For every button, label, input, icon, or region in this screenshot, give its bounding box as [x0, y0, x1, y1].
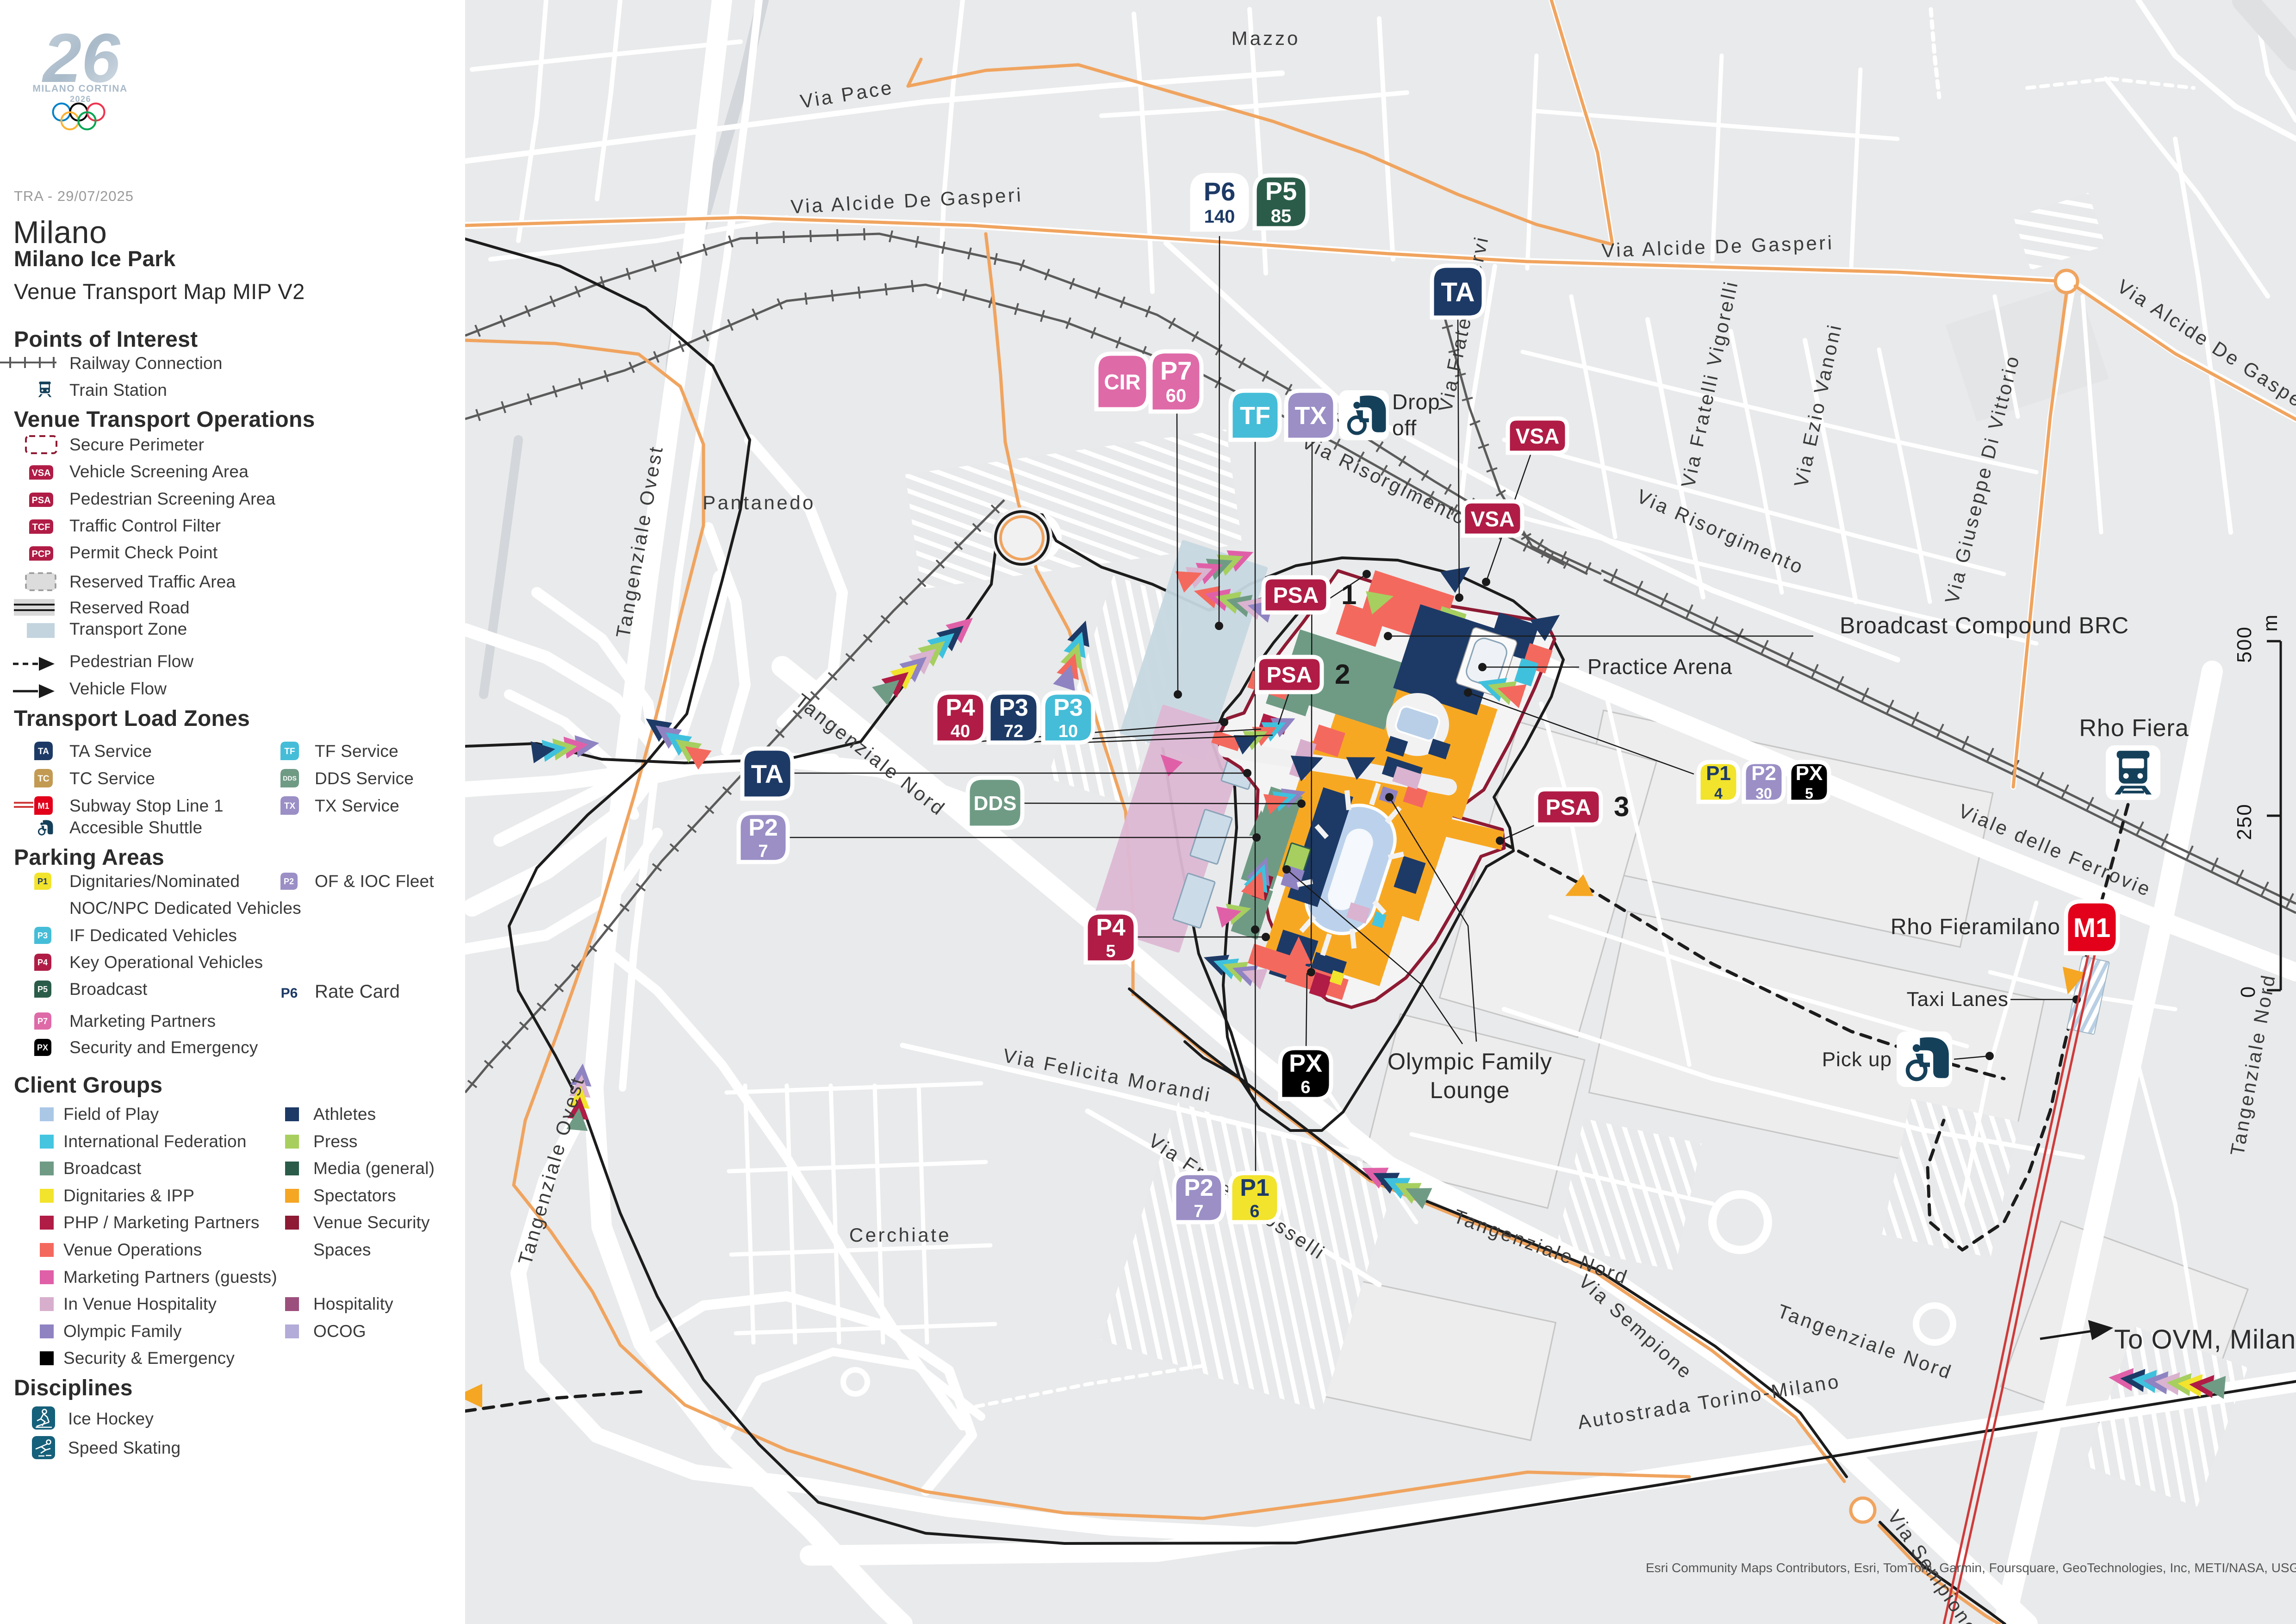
svg-text:OCOG: OCOG [313, 1322, 366, 1341]
svg-text:P4: P4 [1096, 914, 1126, 941]
svg-text:M1: M1 [37, 801, 49, 811]
svg-text:TA Service: TA Service [69, 742, 152, 761]
svg-text:Subway Stop Line 1: Subway Stop Line 1 [69, 796, 224, 815]
svg-text:Pedestrian Screening Area: Pedestrian Screening Area [69, 489, 275, 508]
svg-text:Rho Fieramilano: Rho Fieramilano [1891, 915, 2060, 939]
svg-text:TX: TX [284, 801, 296, 811]
svg-text:VSA: VSA [1471, 507, 1515, 531]
svg-text:Athletes: Athletes [313, 1105, 376, 1124]
svg-text:Security and Emergency: Security and Emergency [69, 1038, 258, 1057]
svg-text:Press: Press [313, 1132, 358, 1151]
svg-text:Traffic Control Filter: Traffic Control Filter [69, 516, 221, 535]
svg-text:M1: M1 [2073, 913, 2111, 943]
svg-text:Ice Hockey: Ice Hockey [68, 1409, 154, 1428]
svg-text:Milano: Milano [13, 215, 107, 250]
svg-text:PSA: PSA [31, 495, 50, 506]
svg-text:Media (general): Media (general) [313, 1159, 435, 1178]
svg-text:Broadcast: Broadcast [63, 1159, 142, 1178]
svg-text:Pantanedo: Pantanedo [703, 492, 815, 513]
svg-text:Field of Play: Field of Play [63, 1105, 159, 1124]
svg-text:Cerchiate: Cerchiate [849, 1224, 951, 1246]
svg-text:OF & IOC Fleet: OF & IOC Fleet [315, 872, 434, 891]
svg-text:DDS Service: DDS Service [315, 769, 414, 788]
svg-text:Pedestrian Flow: Pedestrian Flow [69, 652, 193, 671]
svg-text:2026: 2026 [70, 94, 91, 104]
svg-text:Venue Transport Operations: Venue Transport Operations [14, 407, 315, 432]
svg-text:P6: P6 [281, 986, 298, 1001]
svg-text:Drop: Drop [1392, 390, 1440, 414]
svg-text:P2: P2 [284, 877, 294, 886]
svg-text:Vehicle Flow: Vehicle Flow [69, 679, 167, 698]
svg-text:TF: TF [284, 747, 295, 756]
svg-text:Olympic Family: Olympic Family [63, 1322, 182, 1341]
svg-text:Vehicle Screening Area: Vehicle Screening Area [69, 462, 249, 481]
svg-text:5: 5 [1805, 785, 1813, 802]
svg-text:P2: P2 [1184, 1174, 1213, 1201]
svg-text:72: 72 [1004, 722, 1023, 741]
svg-text:Disciplines: Disciplines [14, 1376, 133, 1400]
svg-text:VSA: VSA [31, 468, 50, 478]
svg-text:Broadcast Compound BRC: Broadcast Compound BRC [1840, 612, 2129, 638]
svg-text:Practice Arena: Practice Arena [1587, 655, 1732, 679]
svg-text:30: 30 [1755, 785, 1772, 802]
svg-text:Accesible Shuttle: Accesible Shuttle [69, 818, 202, 837]
svg-text:140: 140 [1204, 206, 1235, 227]
svg-text:m: m [2259, 614, 2282, 632]
svg-text:Pick up: Pick up [1822, 1048, 1892, 1071]
svg-text:Speed Skating: Speed Skating [68, 1438, 180, 1457]
svg-text:NOC/NPC Dedicated Vehicles: NOC/NPC Dedicated Vehicles [69, 899, 301, 918]
svg-text:10: 10 [1058, 722, 1078, 741]
svg-text:To OVM, Milano: To OVM, Milano [2114, 1324, 2296, 1355]
svg-text:Taxi Lanes: Taxi Lanes [1907, 988, 2009, 1011]
svg-text:Permit Check Point: Permit Check Point [69, 543, 218, 562]
svg-text:Parking Areas: Parking Areas [14, 845, 164, 870]
svg-text:DDS: DDS [974, 792, 1017, 815]
svg-text:IF Dedicated Vehicles: IF Dedicated Vehicles [69, 926, 237, 945]
svg-text:Marketing Partners (guests): Marketing Partners (guests) [63, 1268, 277, 1287]
svg-text:TC: TC [37, 774, 50, 784]
svg-text:Transport Load Zones: Transport Load Zones [14, 706, 250, 731]
svg-text:250: 250 [2233, 803, 2256, 840]
svg-text:P7: P7 [1160, 356, 1192, 385]
svg-text:Esri Community Maps Contributo: Esri Community Maps Contributors, Esri, … [1646, 1561, 2296, 1575]
svg-text:Railway Connection: Railway Connection [69, 354, 223, 373]
svg-text:TF: TF [1240, 402, 1270, 430]
svg-text:P6: P6 [1204, 177, 1236, 206]
svg-text:6: 6 [1250, 1202, 1259, 1221]
svg-text:Reserved Traffic Area: Reserved Traffic Area [69, 572, 236, 591]
svg-text:TC Service: TC Service [69, 769, 155, 788]
svg-text:TF Service: TF Service [315, 742, 398, 761]
svg-text:Broadcast: Broadcast [69, 980, 148, 999]
svg-text:P5: P5 [1265, 176, 1297, 206]
svg-text:PHP / Marketing Partners: PHP / Marketing Partners [63, 1213, 260, 1232]
svg-text:Client Groups: Client Groups [14, 1073, 162, 1098]
svg-text:TRA - 29/07/2025: TRA - 29/07/2025 [14, 188, 134, 204]
svg-text:Venue Security: Venue Security [313, 1213, 430, 1232]
svg-text:Venue Operations: Venue Operations [63, 1240, 202, 1259]
svg-text:VSA: VSA [1516, 424, 1560, 448]
svg-text:PX: PX [1796, 762, 1823, 785]
svg-text:P2: P2 [1751, 762, 1776, 785]
svg-text:Marketing Partners: Marketing Partners [69, 1012, 216, 1031]
svg-text:Milano Ice Park: Milano Ice Park [14, 246, 176, 271]
svg-text:Spectators: Spectators [313, 1186, 396, 1205]
svg-text:PCP: PCP [31, 549, 50, 559]
svg-text:P1: P1 [1706, 762, 1731, 785]
svg-text:off: off [1392, 416, 1417, 440]
svg-text:TA: TA [38, 747, 49, 756]
svg-text:P1: P1 [37, 877, 48, 886]
svg-text:6: 6 [1300, 1078, 1310, 1097]
svg-text:PSA: PSA [1267, 663, 1313, 687]
svg-text:40: 40 [951, 722, 970, 741]
svg-text:P5: P5 [37, 985, 48, 994]
svg-text:Mazzo: Mazzo [1232, 27, 1300, 49]
svg-text:Venue Transport Map MIP V2: Venue Transport Map MIP V2 [14, 279, 305, 304]
svg-text:5: 5 [1106, 942, 1115, 961]
svg-text:PX: PX [1289, 1049, 1322, 1077]
svg-text:Points of Interest: Points of Interest [14, 327, 198, 352]
svg-text:P3: P3 [1053, 694, 1083, 721]
svg-text:P7: P7 [37, 1017, 48, 1026]
svg-text:P3: P3 [37, 931, 48, 940]
svg-text:Reserved Road: Reserved Road [69, 598, 190, 617]
svg-text:Dignitaries & IPP: Dignitaries & IPP [63, 1186, 194, 1205]
svg-text:Lounge: Lounge [1430, 1077, 1510, 1103]
svg-text:Hospitality: Hospitality [313, 1294, 393, 1313]
svg-text:P3: P3 [999, 694, 1028, 721]
svg-text:PSA: PSA [1546, 795, 1592, 820]
svg-text:P4: P4 [946, 694, 975, 721]
svg-text:1: 1 [1341, 579, 1356, 610]
svg-text:Transport Zone: Transport Zone [69, 619, 187, 638]
svg-text:60: 60 [1166, 386, 1187, 406]
svg-text:P1: P1 [1240, 1174, 1269, 1201]
svg-text:PX: PX [37, 1043, 48, 1052]
svg-text:85: 85 [1271, 206, 1292, 226]
svg-text:TX Service: TX Service [315, 796, 399, 815]
svg-text:TA: TA [751, 759, 784, 788]
svg-text:International Federation: International Federation [63, 1132, 247, 1151]
svg-text:Olympic Family: Olympic Family [1388, 1049, 1552, 1074]
svg-text:Key Operational Vehicles: Key Operational Vehicles [69, 953, 263, 972]
svg-text:Spaces: Spaces [313, 1240, 371, 1259]
svg-text:Dignitaries/Nominated: Dignitaries/Nominated [69, 872, 240, 891]
svg-text:Secure Perimeter: Secure Perimeter [69, 435, 204, 454]
svg-text:TX: TX [1294, 402, 1326, 430]
svg-text:TA: TA [1441, 277, 1475, 307]
svg-text:Security & Emergency: Security & Emergency [63, 1349, 235, 1368]
svg-text:PSA: PSA [1273, 583, 1319, 608]
svg-text:3: 3 [1614, 791, 1629, 822]
svg-text:DDS: DDS [283, 775, 297, 782]
svg-text:2: 2 [1335, 659, 1350, 690]
svg-text:500: 500 [2233, 626, 2256, 662]
svg-text:Rate Card: Rate Card [315, 981, 400, 1002]
svg-text:P2: P2 [748, 814, 778, 841]
svg-text:MILANO CORTINA: MILANO CORTINA [32, 83, 127, 94]
svg-text:7: 7 [758, 842, 768, 861]
svg-text:CIR: CIR [1104, 370, 1140, 394]
svg-text:P4: P4 [37, 958, 48, 967]
svg-text:Train Station: Train Station [69, 381, 167, 400]
svg-text:4: 4 [1714, 785, 1723, 802]
svg-text:7: 7 [1194, 1202, 1203, 1221]
svg-text:In Venue Hospitality: In Venue Hospitality [63, 1294, 217, 1313]
svg-text:Rho Fiera: Rho Fiera [2079, 715, 2189, 742]
svg-text:TCF: TCF [32, 522, 50, 532]
